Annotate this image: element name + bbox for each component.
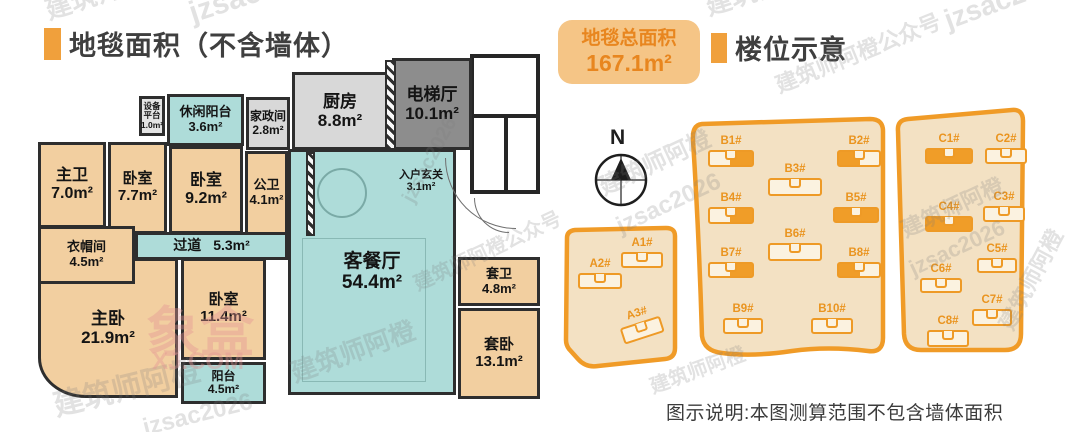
building-b2: B2# [832,136,886,167]
dining-table-icon [317,168,367,218]
building-c1: C1# [920,134,978,164]
room-suite-bath: 套卫4.8m² [458,257,540,306]
room-housekeeping: 家政间2.8m² [246,97,290,150]
building-footprint-icon [768,243,822,261]
room-area: 3.6m² [189,120,223,135]
building-footprint-icon [833,207,879,223]
building-notch [737,319,749,328]
building-notch [986,310,998,319]
room-area: 4.8m² [482,282,516,297]
building-notch [850,208,862,217]
building-footprint-icon [708,262,754,278]
room-name: 卧室 [208,292,238,309]
room-area: 4.5m² [208,383,239,396]
building-notch [991,259,1003,268]
building-c4: C4# [920,202,978,232]
building-footprint-icon [708,150,754,167]
building-footprint-icon [983,206,1025,222]
building-label: C7# [981,295,1002,307]
wall-hatch [385,60,396,150]
room-bedroom-b: 卧室9.2m² [169,146,243,234]
building-notch [789,179,801,188]
building-notch [594,274,606,283]
watermark-text: jzsac2026 [940,0,1074,36]
building-footprint-icon [708,207,754,224]
building-label: A2# [589,259,610,271]
room-area: 7.7m² [118,188,157,205]
room-balcony: 阳台4.5m² [181,362,266,404]
room-name: 家政间 [250,110,286,123]
watermark-text: 建筑师阿橙 [700,0,835,23]
building-footprint-icon [619,315,664,344]
building-c6: C6# [915,264,967,293]
room-name: 公卫 [253,178,279,193]
building-a3: A3# [611,301,670,346]
room-master-bath: 主卫7.0m² [38,142,106,228]
building-label: B3# [784,164,805,176]
building-c5: C5# [972,244,1022,273]
room-name: 卧室 [122,171,152,188]
building-notch [725,208,737,217]
building-footprint-icon [925,148,973,164]
room-area: 3.1m² [407,181,436,193]
building-b8: B8# [832,248,886,278]
room-name: 过道 [173,238,201,254]
room-area: 2.8m² [252,124,283,137]
building-label: B6# [784,229,805,241]
room-name: 阳台 [211,370,235,383]
building-label: C5# [986,244,1007,256]
building-b7: B7# [703,248,759,278]
building-label: C8# [937,316,958,328]
room-name: 设备平台 [142,102,162,121]
building-notch [998,207,1010,216]
room-area: 10.1m² [405,104,459,123]
building-b4: B4# [703,193,759,224]
building-c2: C2# [980,134,1032,164]
building-label: B10# [818,304,846,316]
building-notch [853,263,865,272]
room-name: 电梯厅 [407,85,458,104]
footnote: 图示说明:本图测算范围不包含墙体面积 [666,398,1003,425]
building-notch [725,263,737,272]
building-footprint-icon [768,178,822,196]
building-footprint-icon [977,258,1017,273]
building-notch [853,151,865,160]
room-elevator-hall: 电梯厅10.1m² [392,58,472,150]
left-panel-header: 地毯面积（不含墙体） [44,24,349,63]
room-area: 1.0m² [141,121,163,131]
room-area: 8.8m² [318,111,362,130]
building-footprint-icon [972,309,1012,326]
building-c7: C7# [967,295,1017,326]
building-footprint-icon [837,150,881,167]
building-b9: B9# [718,304,768,334]
building-label: C3# [993,192,1014,204]
room-cloakroom: 衣帽间4.5m² [38,226,135,284]
room-name: 主卧 [91,309,125,328]
building-notch [942,331,954,340]
right-panel-title: 楼位示意 [735,28,847,67]
room-leisure-balcony: 休闲阳台3.6m² [167,94,244,146]
room-bedroom-a: 卧室7.7m² [108,142,167,234]
building-b1: B1# [703,136,759,167]
room-guest-bath: 公卫4.1m² [245,151,288,235]
room-corridor: 过道5.3m² [135,232,288,260]
building-notch [826,319,838,328]
title-bullet-icon [44,28,61,60]
building-b10: B10# [806,304,858,334]
building-footprint-icon [927,330,969,347]
room-equipment-platform: 设备平台1.0m² [139,96,165,136]
building-label: B7# [720,248,741,260]
room-area: 4.1m² [250,193,284,208]
building-c8: C8# [922,316,974,347]
room-suite-bedroom: 套卧13.1m² [458,308,540,399]
room-area: 21.9m² [81,328,135,347]
room-name: 主卫 [56,167,88,185]
building-notch [634,321,648,333]
building-footprint-icon [985,148,1027,164]
building-label: B9# [732,304,753,316]
building-footprint-icon [925,216,973,232]
room-kitchen: 厨房8.8m² [292,72,388,150]
room-name: 套卧 [484,337,514,354]
watermark-text: 建筑师阿橙 [645,338,749,399]
room-bedroom-c: 卧室11.4m² [181,258,266,360]
north-label: N [610,126,625,150]
room-area: 11.4m² [200,309,247,326]
building-footprint-icon [578,273,622,289]
building-b5: B5# [828,193,884,223]
building-label: C2# [995,134,1016,146]
building-label: C1# [938,134,959,146]
room-area: 7.0m² [51,185,93,203]
room-name: 卧室 [190,172,222,190]
room-area: 5.3m² [213,238,250,254]
room-area: 4.5m² [70,255,104,270]
building-footprint-icon [811,318,853,334]
room-name: 休闲阳台 [179,105,231,120]
right-panel-header: 楼位示意 [711,28,847,67]
total-area-value: 167.1m² [586,50,672,76]
wall-hatch [306,152,315,236]
left-panel-title: 地毯面积（不含墙体） [69,24,349,63]
building-notch [935,279,947,288]
building-b3: B3# [763,164,827,196]
building-label: B1# [720,136,741,148]
room-name: 衣帽间 [67,240,106,255]
room-area: 9.2m² [185,190,227,208]
building-label: B8# [848,248,869,260]
infographic-canvas: 地毯面积（不含墙体） 地毯总面积 167.1m² 楼位示意 客餐厅54.4m²过… [0,0,1080,432]
door-arc [474,198,509,233]
building-notch [943,149,955,158]
building-notch [725,151,737,160]
room-area: 13.1m² [475,354,523,371]
building-label: C4# [938,202,959,214]
title-bullet-icon [711,33,727,63]
carpet-outline [302,238,426,382]
building-label: B2# [848,136,869,148]
building-footprint-icon [920,278,962,293]
room-foyer: 入户玄关3.1m² [388,150,454,212]
building-a2: A2# [573,259,627,289]
building-label: B5# [845,193,866,205]
north-arrow-icon [593,152,649,208]
building-label: C6# [930,264,951,276]
building-footprint-icon [621,252,663,268]
building-notch [943,217,955,226]
building-footprint-icon [837,262,881,278]
building-label: B4# [720,193,741,205]
building-c3: C3# [978,192,1030,222]
building-notch [789,244,801,253]
building-notch [1000,149,1012,158]
building-b6: B6# [763,229,827,261]
total-area-badge: 地毯总面积 167.1m² [558,20,700,84]
room-name: 厨房 [323,92,357,111]
building-label: A1# [631,238,652,250]
building-notch [636,253,648,262]
building-footprint-icon [723,318,763,334]
room-name: 套卫 [486,267,512,282]
room-name: 入户玄关 [399,169,443,181]
total-area-label: 地毯总面积 [581,28,676,50]
